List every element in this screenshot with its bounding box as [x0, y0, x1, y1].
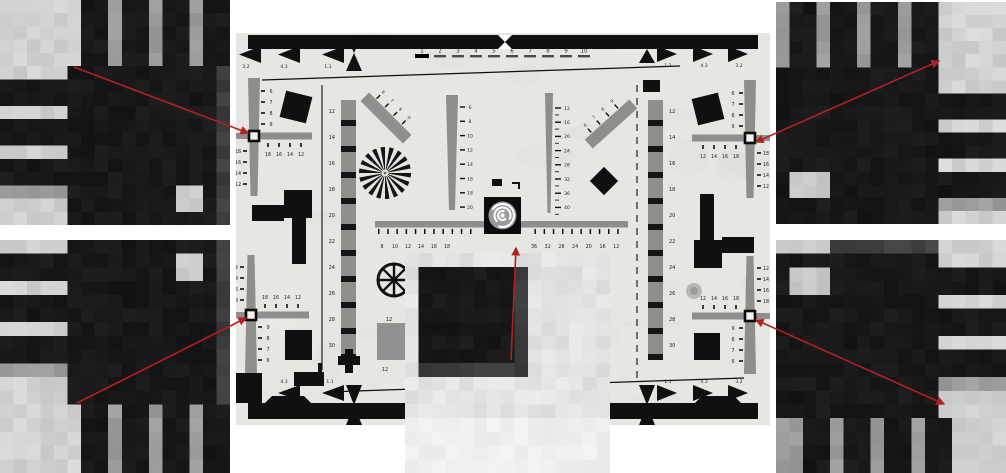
svg-text:16: 16 [763, 288, 769, 294]
svg-text:24: 24 [329, 265, 335, 271]
svg-text:12: 12 [467, 148, 473, 154]
svg-text:8: 8 [269, 111, 272, 117]
svg-text:7: 7 [266, 347, 269, 353]
svg-text:22: 22 [669, 239, 675, 245]
svg-text:16: 16 [276, 152, 282, 158]
svg-text:18: 18 [733, 296, 739, 302]
svg-text:6: 6 [469, 105, 472, 111]
svg-text:6: 6 [510, 49, 514, 55]
svg-text:8: 8 [731, 337, 734, 343]
svg-text:14: 14 [329, 135, 335, 141]
svg-text:12: 12 [763, 184, 769, 190]
svg-text:5: 5 [492, 49, 496, 55]
svg-text:30: 30 [669, 343, 675, 349]
svg-text:16: 16 [599, 244, 605, 250]
svg-text:12: 12 [236, 265, 238, 271]
svg-text:14: 14 [669, 135, 675, 141]
svg-text:20: 20 [329, 213, 335, 219]
svg-text:4.3: 4.3 [280, 64, 287, 70]
svg-text:10: 10 [581, 49, 588, 55]
zoom-crop-bottom-left [0, 240, 230, 473]
svg-text:8: 8 [266, 336, 269, 342]
svg-text:16: 16 [722, 154, 728, 160]
zoom-crop-bottom-left-canvas [0, 240, 230, 473]
svg-text:36: 36 [564, 191, 570, 197]
svg-text:7: 7 [731, 348, 734, 354]
svg-text:16: 16 [431, 244, 437, 250]
svg-text:9: 9 [564, 49, 568, 55]
svg-text:16: 16 [763, 162, 769, 168]
svg-text:14: 14 [236, 171, 241, 177]
svg-text:14: 14 [711, 154, 717, 160]
svg-text:18: 18 [265, 152, 271, 158]
svg-text:9: 9 [266, 325, 269, 331]
zoom-crop-bottom-right [776, 240, 1006, 473]
svg-text:28: 28 [329, 317, 335, 323]
svg-text:28: 28 [558, 244, 564, 250]
svg-text:32: 32 [564, 177, 570, 183]
svg-text:12: 12 [700, 296, 706, 302]
svg-text:30: 30 [329, 343, 335, 349]
svg-text:16: 16 [236, 160, 241, 166]
svg-text:12: 12 [564, 106, 570, 112]
zoom-crop-center [405, 253, 610, 473]
svg-text:12: 12 [763, 266, 769, 272]
svg-text:1.1: 1.1 [324, 64, 331, 70]
svg-text:14: 14 [763, 173, 769, 179]
svg-text:7: 7 [269, 100, 272, 106]
svg-text:3.2: 3.2 [735, 379, 742, 385]
svg-text:9: 9 [731, 124, 734, 130]
svg-text:12: 12 [700, 154, 706, 160]
zoom-crop-bottom-right-canvas [776, 240, 1006, 473]
svg-text:14: 14 [284, 295, 290, 301]
svg-text:4.3: 4.3 [700, 379, 707, 385]
svg-text:14: 14 [711, 296, 717, 302]
svg-text:7: 7 [528, 49, 532, 55]
svg-text:28: 28 [564, 163, 570, 169]
svg-text:18: 18 [763, 299, 769, 305]
svg-text:18: 18 [236, 298, 238, 304]
svg-text:4: 4 [474, 49, 478, 55]
svg-text:16: 16 [669, 161, 675, 167]
svg-text:36: 36 [531, 244, 537, 250]
svg-text:8: 8 [731, 113, 734, 119]
svg-text:8: 8 [380, 244, 383, 250]
svg-text:12: 12 [298, 152, 304, 158]
svg-text:12: 12 [386, 317, 392, 323]
svg-text:24: 24 [564, 148, 570, 154]
svg-text:3: 3 [456, 49, 460, 55]
svg-text:6: 6 [269, 89, 272, 95]
svg-text:18: 18 [467, 191, 473, 197]
svg-text:10: 10 [467, 133, 473, 139]
svg-text:14: 14 [287, 152, 293, 158]
svg-text:2: 2 [438, 49, 442, 55]
svg-text:18: 18 [262, 295, 268, 301]
svg-text:4.3: 4.3 [280, 379, 287, 385]
svg-text:16: 16 [273, 295, 279, 301]
svg-text:20: 20 [586, 244, 592, 250]
svg-text:10: 10 [392, 244, 398, 250]
svg-text:24: 24 [669, 265, 675, 271]
svg-text:14: 14 [418, 244, 424, 250]
svg-text:4.3: 4.3 [700, 63, 707, 69]
svg-text:8: 8 [469, 119, 472, 125]
svg-text:40: 40 [564, 205, 570, 211]
svg-text:6: 6 [266, 358, 269, 364]
svg-text:1.1: 1.1 [326, 379, 333, 385]
svg-text:8: 8 [546, 49, 550, 55]
zoom-crop-center-canvas [405, 253, 610, 473]
svg-text:18: 18 [733, 154, 739, 160]
svg-text:12: 12 [295, 295, 301, 301]
svg-text:16: 16 [236, 287, 238, 293]
svg-text:16: 16 [467, 176, 473, 182]
svg-text:9: 9 [269, 122, 272, 128]
svg-text:9: 9 [731, 326, 734, 332]
svg-text:1: 1 [420, 49, 424, 55]
svg-text:20: 20 [467, 205, 473, 211]
svg-text:18: 18 [329, 187, 335, 193]
svg-text:12: 12 [405, 244, 411, 250]
svg-text:1.1: 1.1 [664, 63, 671, 69]
svg-text:6: 6 [731, 91, 734, 97]
svg-text:18: 18 [444, 244, 450, 250]
svg-text:14: 14 [763, 277, 769, 283]
svg-text:1.1: 1.1 [664, 379, 671, 385]
svg-text:12: 12 [236, 182, 241, 188]
svg-text:12: 12 [669, 109, 675, 115]
zoom-crop-top-left-canvas [0, 0, 230, 225]
svg-text:7: 7 [731, 102, 734, 108]
svg-text:12: 12 [613, 244, 619, 250]
svg-text:26: 26 [669, 291, 675, 297]
zoom-crop-top-right-canvas [776, 2, 1006, 224]
svg-text:16: 16 [722, 296, 728, 302]
svg-text:14: 14 [467, 162, 473, 168]
svg-text:20: 20 [564, 134, 570, 140]
svg-text:18: 18 [763, 151, 769, 157]
svg-text:3.2: 3.2 [735, 63, 742, 69]
zoom-crop-top-left [0, 0, 230, 225]
zoom-crop-top-right [776, 2, 1006, 224]
svg-text:26: 26 [329, 291, 335, 297]
svg-text:3.2: 3.2 [242, 64, 249, 70]
svg-text:22: 22 [329, 239, 335, 245]
svg-text:12: 12 [382, 367, 388, 373]
svg-text:18: 18 [669, 187, 675, 193]
figure-canvas: 3.24.31.11.14.33.23.24.31.11.14.33.21234… [0, 0, 1006, 473]
svg-text:12: 12 [329, 109, 335, 115]
svg-text:32: 32 [545, 244, 551, 250]
svg-text:24: 24 [572, 244, 578, 250]
svg-text:16: 16 [329, 161, 335, 167]
svg-text:6: 6 [731, 359, 734, 365]
svg-text:16: 16 [564, 120, 570, 126]
svg-text:18: 18 [236, 149, 241, 155]
svg-text:14: 14 [236, 276, 238, 282]
svg-text:20: 20 [669, 213, 675, 219]
svg-text:28: 28 [669, 317, 675, 323]
